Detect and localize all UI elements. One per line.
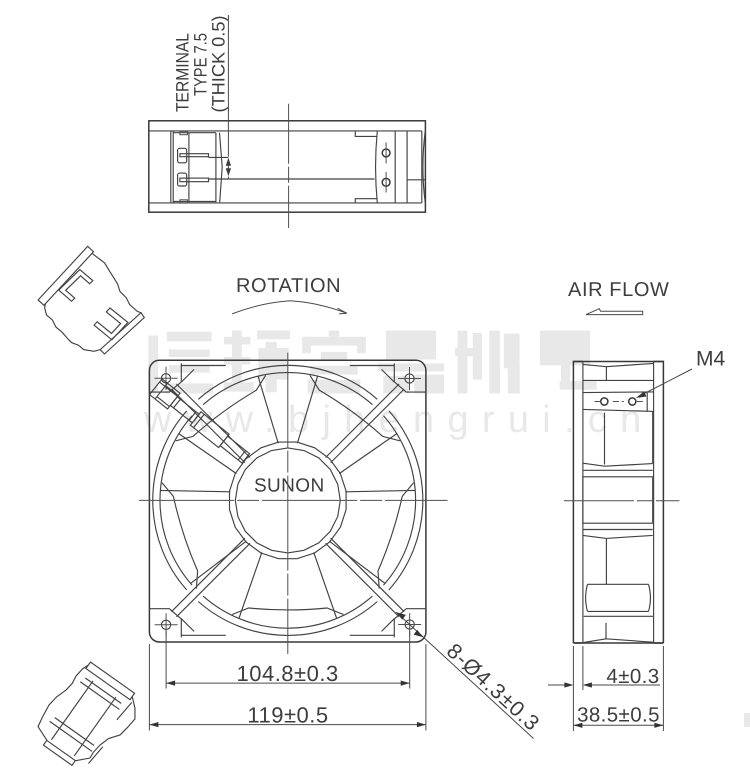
svg-text:38.5±0.5: 38.5±0.5 — [577, 704, 660, 727]
svg-text:4±0.3: 4±0.3 — [606, 665, 659, 688]
svg-text:AIR FLOW: AIR FLOW — [568, 279, 669, 301]
svg-text:M4: M4 — [696, 348, 725, 371]
svg-text:TYPE 7.5: TYPE 7.5 — [191, 33, 211, 96]
svg-text:(THICK 0.5): (THICK 0.5) — [209, 16, 229, 113]
svg-text:104.8±0.3: 104.8±0.3 — [236, 661, 338, 686]
svg-text:ROTATION: ROTATION — [236, 275, 341, 297]
svg-text:www.bjhengrui.cn: www.bjhengrui.cn — [143, 399, 655, 441]
svg-text:SUNON: SUNON — [254, 476, 325, 497]
svg-text:TERMINAL: TERMINAL — [173, 33, 193, 112]
svg-text:119±0.5: 119±0.5 — [247, 702, 328, 727]
